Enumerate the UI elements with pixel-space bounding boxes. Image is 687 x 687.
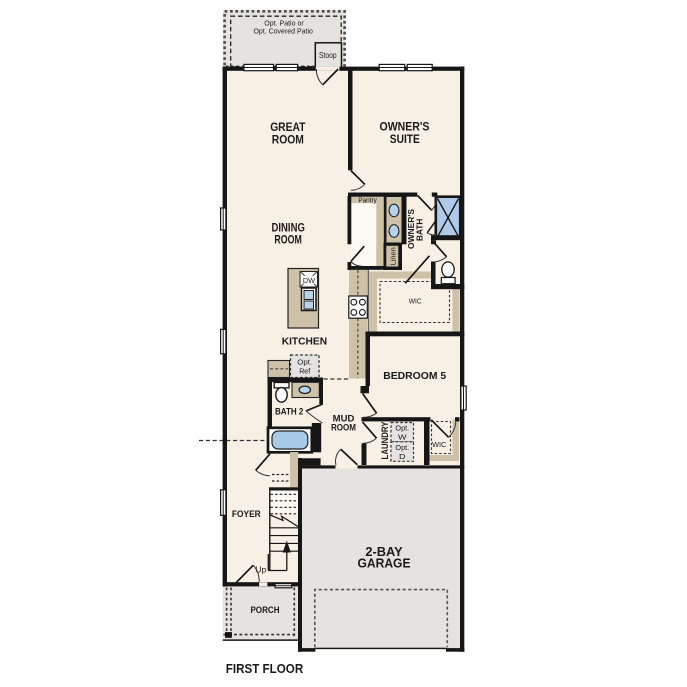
svg-text:PORCH: PORCH (250, 605, 279, 615)
svg-text:OWNER'S: OWNER'S (380, 121, 430, 133)
svg-text:W: W (398, 434, 407, 441)
svg-text:Ref: Ref (299, 366, 311, 375)
svg-text:WIC: WIC (409, 297, 422, 306)
svg-text:D: D (399, 454, 406, 461)
svg-text:Opt. Covered Patio: Opt. Covered Patio (254, 26, 313, 35)
svg-text:Opt.: Opt. (297, 358, 312, 367)
svg-text:GREAT: GREAT (270, 122, 305, 134)
svg-text:DINING: DINING (272, 223, 305, 235)
svg-text:BATH 2: BATH 2 (275, 407, 303, 418)
svg-text:KITCHEN: KITCHEN (282, 335, 327, 347)
svg-text:GARAGE: GARAGE (357, 556, 410, 571)
svg-text:BATH: BATH (414, 219, 424, 241)
svg-text:LAUNDRY: LAUNDRY (380, 422, 390, 460)
svg-text:ROOM: ROOM (272, 135, 304, 147)
svg-text:DW: DW (303, 276, 316, 285)
svg-text:ROOM: ROOM (331, 423, 356, 433)
svg-text:WIC: WIC (432, 440, 447, 449)
svg-text:Stoop: Stoop (319, 50, 337, 60)
svg-text:ROOM: ROOM (274, 235, 301, 247)
svg-text:FIRST FLOOR: FIRST FLOOR (226, 661, 304, 676)
svg-text:Opt.: Opt. (395, 426, 409, 433)
svg-text:BEDROOM 5: BEDROOM 5 (383, 370, 446, 382)
svg-text:SUITE: SUITE (390, 134, 420, 146)
svg-text:Opt.: Opt. (395, 445, 409, 452)
svg-text:Linen: Linen (388, 247, 397, 265)
svg-text:FOYER: FOYER (232, 509, 261, 519)
